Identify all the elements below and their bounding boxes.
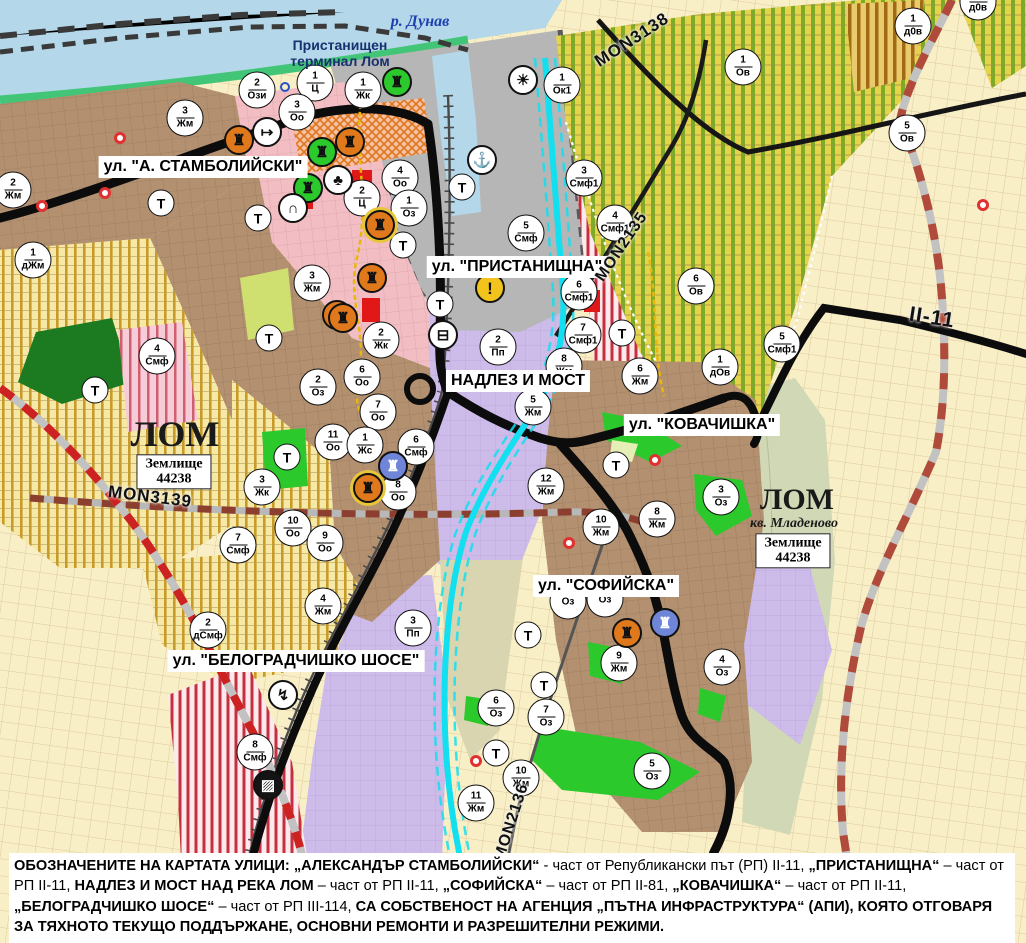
street-label: ул. "А. СТАМБОЛИЙСКИ"	[99, 156, 308, 178]
zone-marker: 7Оо	[360, 394, 397, 431]
red-dot-marker	[99, 187, 111, 199]
zone-marker: 6Оз	[478, 690, 515, 727]
transport-marker: Т	[427, 291, 454, 318]
monument-icon: ♜	[353, 473, 383, 503]
transport-marker: Т	[274, 444, 301, 471]
zone-marker: 5Смф	[508, 215, 545, 252]
land-plot-label: Землище 44238	[136, 454, 211, 489]
transport-marker: Т	[449, 174, 476, 201]
monument-icon: ♜	[335, 127, 365, 157]
truck-station-icon: ⊟	[428, 320, 458, 350]
zone-marker: 1Жс	[347, 427, 384, 464]
zone-marker: 6Ов	[678, 268, 715, 305]
zone-marker: 4Смф	[139, 338, 176, 375]
caption-segment: „КОВАЧИШКА“	[672, 878, 781, 894]
zone-marker: 8Смф	[237, 734, 274, 771]
park-icon: ♣	[323, 165, 353, 195]
river-name-label: р. Дунав	[391, 13, 449, 31]
transport-marker: Т	[390, 232, 417, 259]
land-plot-label: Землище 44238	[755, 533, 830, 568]
zone-marker: 6Жм	[622, 358, 659, 395]
zone-marker: 11Жм	[458, 785, 495, 822]
transport-marker: Т	[609, 320, 636, 347]
zone-marker: 3Жм	[167, 100, 204, 137]
transport-marker: Т	[531, 672, 558, 699]
street-label: ул. "БЕЛОГРАДЧИШКО ШОСЕ"	[168, 650, 425, 672]
power-icon: ↯	[268, 680, 298, 710]
zone-marker: 1д0в	[960, 0, 997, 21]
zone-marker: 8Жм	[639, 501, 676, 538]
caption-segment: – част от РП III-114,	[214, 899, 355, 915]
port-terminal-label: Пристанищен терминал Лом	[290, 37, 390, 69]
street-label: ул. "ПРИСТАНИЩНА"	[427, 256, 608, 278]
zone-marker: 6Смф1	[561, 274, 598, 311]
red-dot-marker	[114, 132, 126, 144]
road-number-label: II-11	[907, 303, 956, 334]
monument-icon: ♜	[612, 618, 642, 648]
zone-marker: 9Оо	[307, 525, 344, 562]
zone-marker: 5Смф1	[764, 326, 801, 363]
caption-segment: „ПРИСТАНИЩНА“	[808, 858, 939, 874]
zone-marker: 2Жк	[363, 322, 400, 359]
zone-marker: 5Ов	[889, 115, 926, 152]
caption-segment: „СОФИЙСКА“	[443, 878, 543, 894]
map-screenshot: { "map": { "water_label": {"text": "р. Д…	[0, 0, 1026, 943]
blue-dot-marker	[280, 82, 290, 92]
zone-marker: 5Жм	[515, 389, 552, 426]
caption-segment: НАДЛЕЗ И МОСТ НАД РЕКА ЛОМ	[75, 878, 314, 894]
zone-marker: 3Пп	[395, 610, 432, 647]
red-dot-marker	[563, 537, 575, 549]
caption-segment: ОБОЗНАЧЕНИТЕ НА КАРТАТА УЛИЦИ: „АЛЕКСАНД…	[14, 858, 539, 874]
map-caption: ОБОЗНАЧЕНИТЕ НА КАРТАТА УЛИЦИ: „АЛЕКСАНД…	[9, 853, 1015, 943]
zone-marker: 2Пп	[480, 329, 517, 366]
transport-marker: Т	[515, 622, 542, 649]
map-overlay: 2Ози1Ц3Жм3Оо2Жм1дЖм3Жм1Жк4Оо2Ц1Оз1Ок13См…	[0, 0, 1026, 943]
monument-icon: ♜	[328, 303, 358, 333]
monument-icon: ♜	[378, 451, 408, 481]
zone-marker: 12Жм	[528, 468, 565, 505]
anchor-port-icon: ⚓	[467, 145, 497, 175]
zone-marker: 7Оз	[528, 699, 565, 736]
zone-marker: 2Ози	[239, 72, 276, 109]
transport-marker: Т	[82, 377, 109, 404]
caption-segment: - част от Републикански път (РП) II-11,	[539, 858, 808, 874]
road-number-label: MON2136	[491, 781, 533, 863]
monument-icon: ♜	[307, 137, 337, 167]
red-dot-marker	[470, 755, 482, 767]
red-dot-marker	[36, 200, 48, 212]
zone-marker: 5Оз	[634, 753, 671, 790]
zone-marker: 1Оз	[391, 190, 428, 227]
caption-segment: – част от РП II-11,	[781, 878, 906, 894]
transport-marker: Т	[256, 325, 283, 352]
map-canvas: 2Ози1Ц3Жм3Оо2Жм1дЖм3Жм1Жк4Оо2Ц1Оз1Ок13См…	[0, 0, 1026, 943]
zone-marker: 2Жм	[0, 172, 32, 209]
road-number-label: MON3138	[591, 9, 673, 72]
tunnel-icon: ∩	[278, 193, 308, 223]
zone-marker: 4Жм	[305, 588, 342, 625]
caption-segment: – част от РП II-81,	[542, 878, 672, 894]
railway-crossing-icon: ▨	[253, 770, 283, 800]
zone-marker: 1Ов	[725, 49, 762, 86]
zone-marker: 3Оо	[279, 94, 316, 131]
monument-icon: ♜	[357, 263, 387, 293]
zone-marker: 3Смф1	[566, 160, 603, 197]
zone-marker: 1дОв	[702, 349, 739, 386]
zone-marker: 1д0в	[895, 8, 932, 45]
zone-marker: 3Оз	[703, 479, 740, 516]
caption-segment: – част от РП II-11,	[314, 878, 443, 894]
place-name-label: ЛОМ	[131, 413, 220, 455]
zone-marker: 9Жм	[601, 645, 638, 682]
street-label: ул. "СОФИЙСКА"	[533, 575, 679, 597]
monument-icon: ♜	[224, 125, 254, 155]
zone-marker: 3Жк	[244, 469, 281, 506]
zone-marker: 2Оз	[300, 369, 337, 406]
key-route-icon: ↦	[252, 117, 282, 147]
transport-marker: Т	[245, 205, 272, 232]
street-label: НАДЛЕЗ И МОСТ	[446, 370, 590, 392]
zone-marker: 2дСмф	[190, 612, 227, 649]
zone-marker: 1Жк	[345, 72, 382, 109]
zone-marker: 3Жм	[294, 265, 331, 302]
transport-marker: Т	[483, 740, 510, 767]
place-name-label: ЛОМ	[760, 483, 834, 517]
zone-marker: 10Жм	[583, 509, 620, 546]
transport-marker: Т	[148, 190, 175, 217]
zone-marker: 4Оз	[704, 649, 741, 686]
transport-marker: Т	[603, 452, 630, 479]
zone-marker: 6Оо	[344, 359, 381, 396]
red-dot-marker	[649, 454, 661, 466]
red-dot-marker	[977, 199, 989, 211]
sun-icon: ☀	[508, 65, 538, 95]
zone-marker: 1дЖм	[15, 242, 52, 279]
monument-icon: ♜	[365, 210, 395, 240]
place-name-label: кв. Младеново	[750, 516, 838, 532]
caption-segment: „БЕЛОГРАДЧИШКО ШОСЕ“	[14, 899, 214, 915]
street-label: ул. "КОВАЧИШКА"	[624, 414, 780, 436]
zone-marker: 1Ок1	[544, 67, 581, 104]
zone-marker: 7Смф	[220, 527, 257, 564]
monument-icon: ♜	[650, 608, 680, 638]
monument-icon: ♜	[382, 67, 412, 97]
